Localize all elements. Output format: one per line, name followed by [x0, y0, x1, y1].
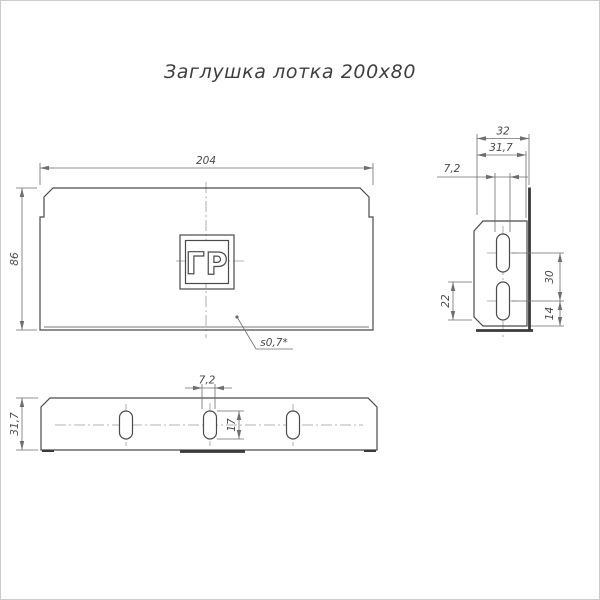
- bottom-flange-width-label: 31,7: [9, 412, 21, 436]
- dim-side-slot-spacing: 30 14: [512, 253, 564, 326]
- side-slot-width-label: 7,2: [444, 163, 461, 175]
- side-slot-lower: [497, 282, 510, 320]
- dim-front-width: 204: [40, 155, 373, 185]
- dim-bottom-flange-width: 31,7: [9, 398, 38, 450]
- front-view: ГР 204 86 s0,7*: [9, 155, 373, 349]
- logo-text: ГР: [185, 247, 228, 282]
- dim-side-depth: 32: [477, 126, 529, 216]
- thickness-note-label: s0,7*: [260, 337, 287, 349]
- logo-stamp: ГР: [180, 235, 234, 289]
- side-slot-length-label: 22: [440, 294, 452, 308]
- dim-front-height: 86: [9, 188, 37, 330]
- thickness-note: s0,7*: [235, 315, 293, 349]
- bottom-slot-center: [204, 411, 217, 439]
- bottom-slot-length-label: 17: [226, 418, 238, 432]
- dim-bottom-slot-width: 7,2: [185, 375, 232, 410]
- side-flange-depth-label: 31,7: [489, 142, 513, 154]
- front-height-label: 86: [9, 252, 21, 266]
- side-view: 32 31,7 7,2 30: [437, 126, 564, 339]
- side-slot-spacing-label: 30: [544, 270, 556, 284]
- side-slot-upper: [497, 234, 510, 272]
- bottom-slot-right: [287, 411, 300, 439]
- side-depth-label: 32: [496, 126, 510, 138]
- bottom-slot-width-label: 7,2: [199, 375, 216, 387]
- front-width-label: 204: [196, 155, 216, 167]
- bottom-slot-left: [120, 411, 133, 439]
- drawing-page: Заглушка лотка 200х80 ГР 204: [0, 0, 600, 600]
- dim-side-slot-length: 22: [440, 282, 472, 320]
- side-slot-offset-label: 14: [544, 307, 556, 320]
- bottom-view: 31,7 7,2 17: [9, 375, 377, 452]
- drawing-title: Заглушка лотка 200х80: [164, 61, 416, 83]
- dim-side-flange-depth: 31,7: [477, 142, 526, 218]
- technical-drawing: Заглушка лотка 200х80 ГР 204: [0, 0, 600, 600]
